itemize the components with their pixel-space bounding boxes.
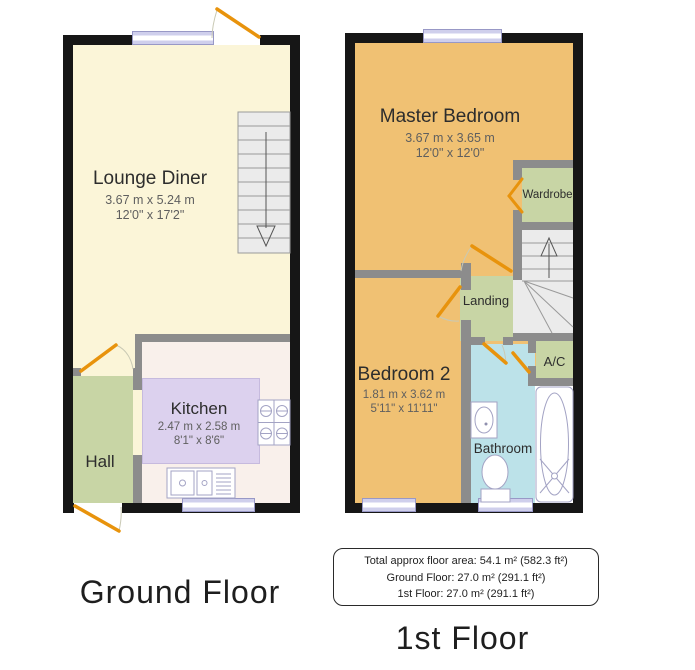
- kitchen-window: [182, 498, 255, 512]
- hall-kitchen-wall-lower: [133, 455, 142, 503]
- lounge-name: Lounge Diner: [60, 168, 240, 190]
- master-bedroom-label: Master Bedroom 3.67 m x 3.65 m 12'0" x 1…: [360, 106, 540, 161]
- lounge-window: [132, 31, 214, 45]
- bathroom-floor: [471, 344, 535, 503]
- bedroom2-bathroom-wall: [461, 320, 471, 503]
- lounge-label: Lounge Diner 3.67 m x 5.24 m 12'0" x 17'…: [60, 168, 240, 223]
- bathroom-top-wall: [471, 337, 485, 345]
- lounge-dims-metric: 3.67 m x 5.24 m: [60, 193, 240, 208]
- bedroom2-name: Bedroom 2: [346, 364, 462, 386]
- summary-first: 1st Floor: 27.0 m² (291.1 ft²): [334, 586, 598, 603]
- bathroom-window: [478, 498, 533, 512]
- summary-ground: Ground Floor: 27.0 m² (291.1 ft²): [334, 570, 598, 587]
- entry-door-opening: [212, 35, 260, 45]
- ground-floor-title: Ground Floor: [40, 574, 320, 611]
- hall-kitchen-wall-upper: [133, 368, 142, 390]
- master-bedroom-dims-imperial: 12'0" x 12'0": [360, 146, 540, 161]
- front-door-opening: [74, 503, 122, 513]
- master-bedroom-name: Master Bedroom: [360, 106, 540, 128]
- bathroom-door-jamb: [503, 337, 513, 345]
- ac-stub-bottom: [528, 366, 536, 378]
- wardrobe-top-wall: [513, 160, 573, 168]
- hall-top-wall-stub: [73, 368, 81, 376]
- floor-area-summary: Total approx floor area: 54.1 m² (582.3 …: [333, 548, 599, 606]
- wardrobe-stairs-wall: [513, 222, 573, 230]
- wardrobe-stub-bottom: [513, 210, 522, 222]
- landing-label: Landing: [458, 293, 514, 308]
- bedroom2-dims-metric: 1.81 m x 3.62 m: [346, 389, 462, 403]
- bedroom2-landing-stub: [461, 278, 471, 290]
- ac-stub-top: [528, 341, 536, 353]
- entry-door: [212, 9, 259, 38]
- kitchen-dims-metric: 2.47 m x 2.58 m: [139, 421, 259, 435]
- hall-label: Hall: [75, 452, 125, 472]
- ac-bottom-wall: [528, 378, 573, 386]
- kitchen-dims-imperial: 8'1" x 8'6": [139, 435, 259, 449]
- stairs-floor: [513, 230, 573, 333]
- lounge-dims-imperial: 12'0" x 17'2": [60, 208, 240, 223]
- bathroom-label: Bathroom: [463, 441, 543, 457]
- kitchen-label: Kitchen 2.47 m x 2.58 m 8'1" x 8'6": [139, 399, 259, 448]
- stairs-left-wall: [513, 230, 522, 280]
- first-floor-title: 1st Floor: [360, 620, 565, 657]
- bedroom2-window: [362, 498, 416, 512]
- bedroom2-label: Bedroom 2 1.81 m x 3.62 m 5'11" x 11'11": [346, 364, 462, 417]
- bedroom2-dims-imperial: 5'11" x 11'11": [346, 403, 462, 417]
- master-bedroom2-wall: [355, 270, 462, 278]
- wardrobe-label: Wardrobe: [520, 189, 575, 203]
- kitchen-name: Kitchen: [139, 399, 259, 419]
- master-bedroom-dims-metric: 3.67 m x 3.65 m: [360, 131, 540, 146]
- kitchen-lounge-wall: [135, 334, 290, 342]
- floorplan-canvas: Lounge Diner 3.67 m x 5.24 m 12'0" x 17'…: [0, 0, 695, 670]
- hall-name: Hall: [75, 452, 125, 472]
- ac-label: A/C: [536, 354, 573, 369]
- summary-total: Total approx floor area: 54.1 m² (582.3 …: [334, 553, 598, 570]
- wardrobe-stub-top: [513, 168, 522, 180]
- master-door-jamb: [461, 263, 471, 278]
- hall-floor: [73, 376, 133, 503]
- master-bedroom-window: [423, 29, 502, 43]
- stairs-bottom-wall: [513, 333, 573, 341]
